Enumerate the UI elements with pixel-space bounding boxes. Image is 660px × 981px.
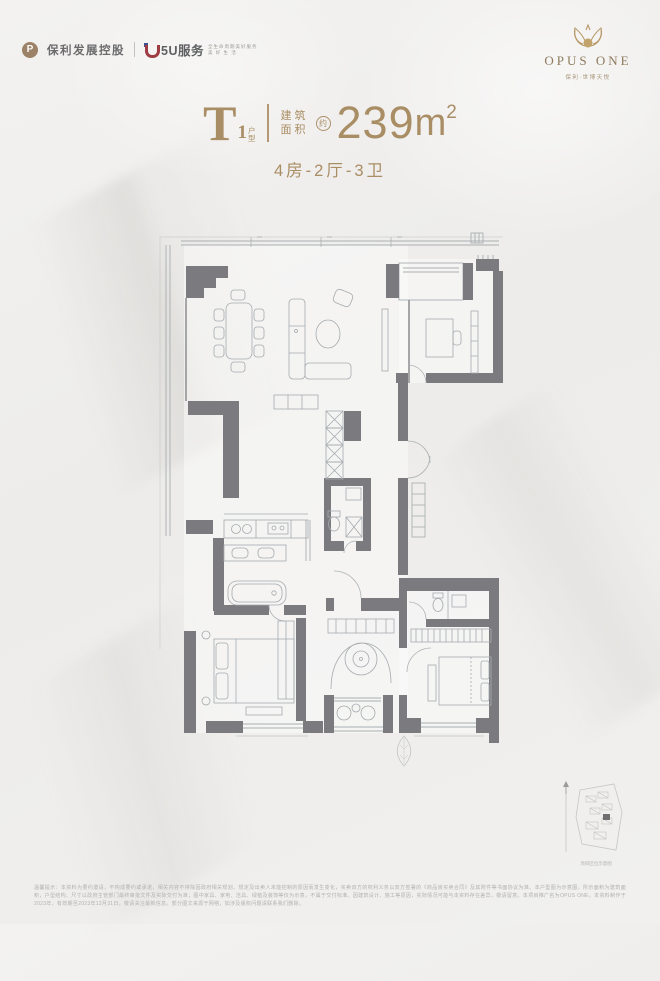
area-number: 239 (337, 102, 415, 144)
room-count-subtitle: 4房-2厅-3卫 (0, 157, 660, 181)
floor-plan (156, 231, 511, 776)
site-highlight-marker (603, 814, 610, 820)
opus-one-subtitle: 保利·世博天悦 (536, 73, 640, 81)
marble-highlight (60, 0, 360, 180)
logo-divider (134, 42, 135, 57)
header-left-logos: P 保利发展控股 5U服务 全生命周期美好服务 美 好 生 活 (22, 40, 257, 59)
fiveu-tagline-line1: 全生命周期美好服务 (208, 44, 258, 49)
unit-type-letter: T (203, 100, 236, 146)
area-unit: m (415, 103, 447, 143)
fiveu-logo-icon (144, 43, 157, 57)
site-location-sketch: 项目区位示意图 (556, 772, 634, 870)
site-sketch-caption: 项目区位示意图 (580, 860, 612, 867)
opus-one-title: OPUS ONE (536, 53, 640, 69)
north-arrow-icon (563, 781, 569, 794)
disclaimer-text: 温馨提示：本资料为要约邀请，不构成要约或承诺，相关内容不排除因政府相关规划、规定… (34, 884, 626, 908)
area-superscript: 2 (446, 102, 457, 124)
wings-emblem-icon (566, 20, 610, 50)
area-label-line1: 建筑 (281, 111, 309, 122)
area-label: 建筑 面积 (281, 111, 309, 136)
title-divider (267, 104, 269, 142)
fiveu-logo-group: 5U服务 全生命周期美好服务 美 好 生 活 (144, 40, 257, 59)
opus-one-logo-block: OPUS ONE 保利·世博天悦 (536, 20, 640, 81)
unit-type-index: 1 (238, 122, 248, 144)
fiveu-tagline-line2: 美 好 生 活 (208, 50, 258, 55)
approx-circle-badge: 约 (316, 116, 331, 131)
area-label-line2: 面积 (281, 125, 309, 136)
poly-brand-name: 保利发展控股 (47, 42, 125, 58)
poly-logo-icon: P (22, 42, 38, 58)
fiveu-tagline: 全生命周期美好服务 美 好 生 活 (208, 44, 258, 55)
fiveu-brand-name: 5U服务 (161, 40, 204, 59)
unit-type-suffix: 户型 (248, 127, 257, 142)
unit-title: T 1 户型 建筑 面积 约 239 m 2 (0, 100, 660, 146)
